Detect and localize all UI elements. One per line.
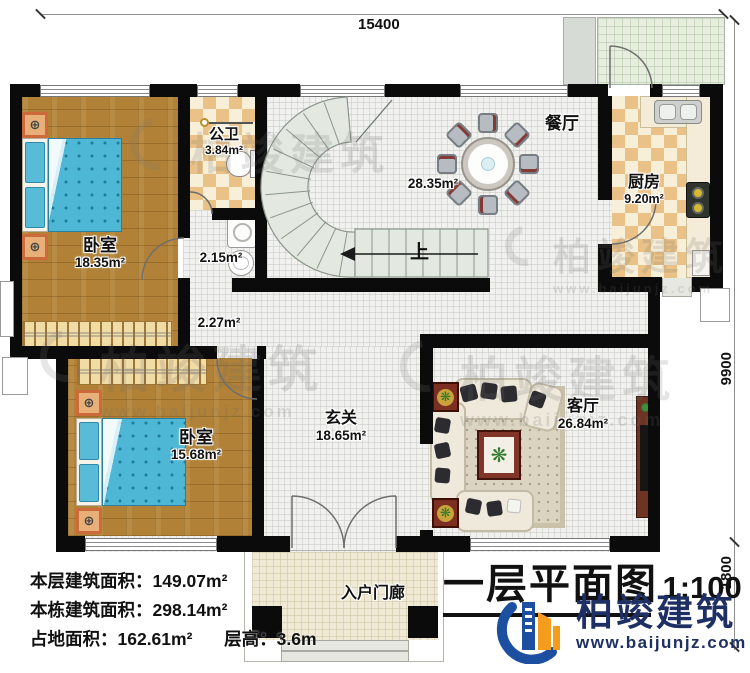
kitchen-label: 厨房 9.20m²	[624, 174, 664, 206]
brand-company-name: 柏竣建筑	[576, 594, 747, 633]
dining-area-label: 28.35m²	[408, 176, 458, 191]
bathroom-label: 公卫 3.84m²	[205, 127, 243, 157]
stats-line1: 本层建筑面积：149.07m²	[30, 567, 317, 596]
brand-logo-icon	[492, 594, 568, 664]
stats-block: 本层建筑面积：149.07m² 本栋建筑面积：298.14m² 占地面积：162…	[30, 567, 317, 654]
terrace-door-arc	[610, 46, 652, 88]
kitchen-door-arc	[612, 200, 656, 244]
brand-logo-block: 柏竣建筑 www.baijunjz.com	[492, 594, 747, 664]
living-label: 客厅 26.84m²	[558, 398, 608, 431]
entry-door-left-arc	[292, 496, 344, 548]
floor-plan-canvas: 15400 9900 1800 ⊕ ⊕	[0, 0, 750, 673]
bedroom1-label: 卧室 18.35m²	[75, 236, 125, 270]
bathroom-door-arc	[190, 192, 212, 214]
stair-cut-mark	[356, 100, 392, 142]
stats-line2: 本栋建筑面积：298.14m²	[30, 596, 317, 625]
bedroom2-label: 卧室 15.68m²	[171, 428, 221, 462]
stats-line3: 占地面积：162.61m² 层高：3.6m	[30, 625, 317, 654]
stair-fan	[261, 97, 355, 277]
stair-up-label: 上	[410, 237, 429, 264]
brand-website: www.baijunjz.com	[576, 633, 747, 653]
logo-building-orange	[538, 612, 551, 650]
porch-label: 入户门廊	[341, 585, 405, 603]
understair-area-label: 2.27m²	[198, 315, 241, 330]
bedroom1-door-arc	[142, 238, 184, 280]
dining-label: 餐厅	[545, 114, 579, 133]
logo-building-orange-2	[553, 626, 560, 650]
entry-door-right-arc	[344, 496, 396, 548]
foyer-label: 玄关 18.65m²	[316, 410, 366, 443]
utility-area-label: 2.15m²	[200, 250, 243, 265]
bedroom2-door-arc	[217, 359, 257, 399]
